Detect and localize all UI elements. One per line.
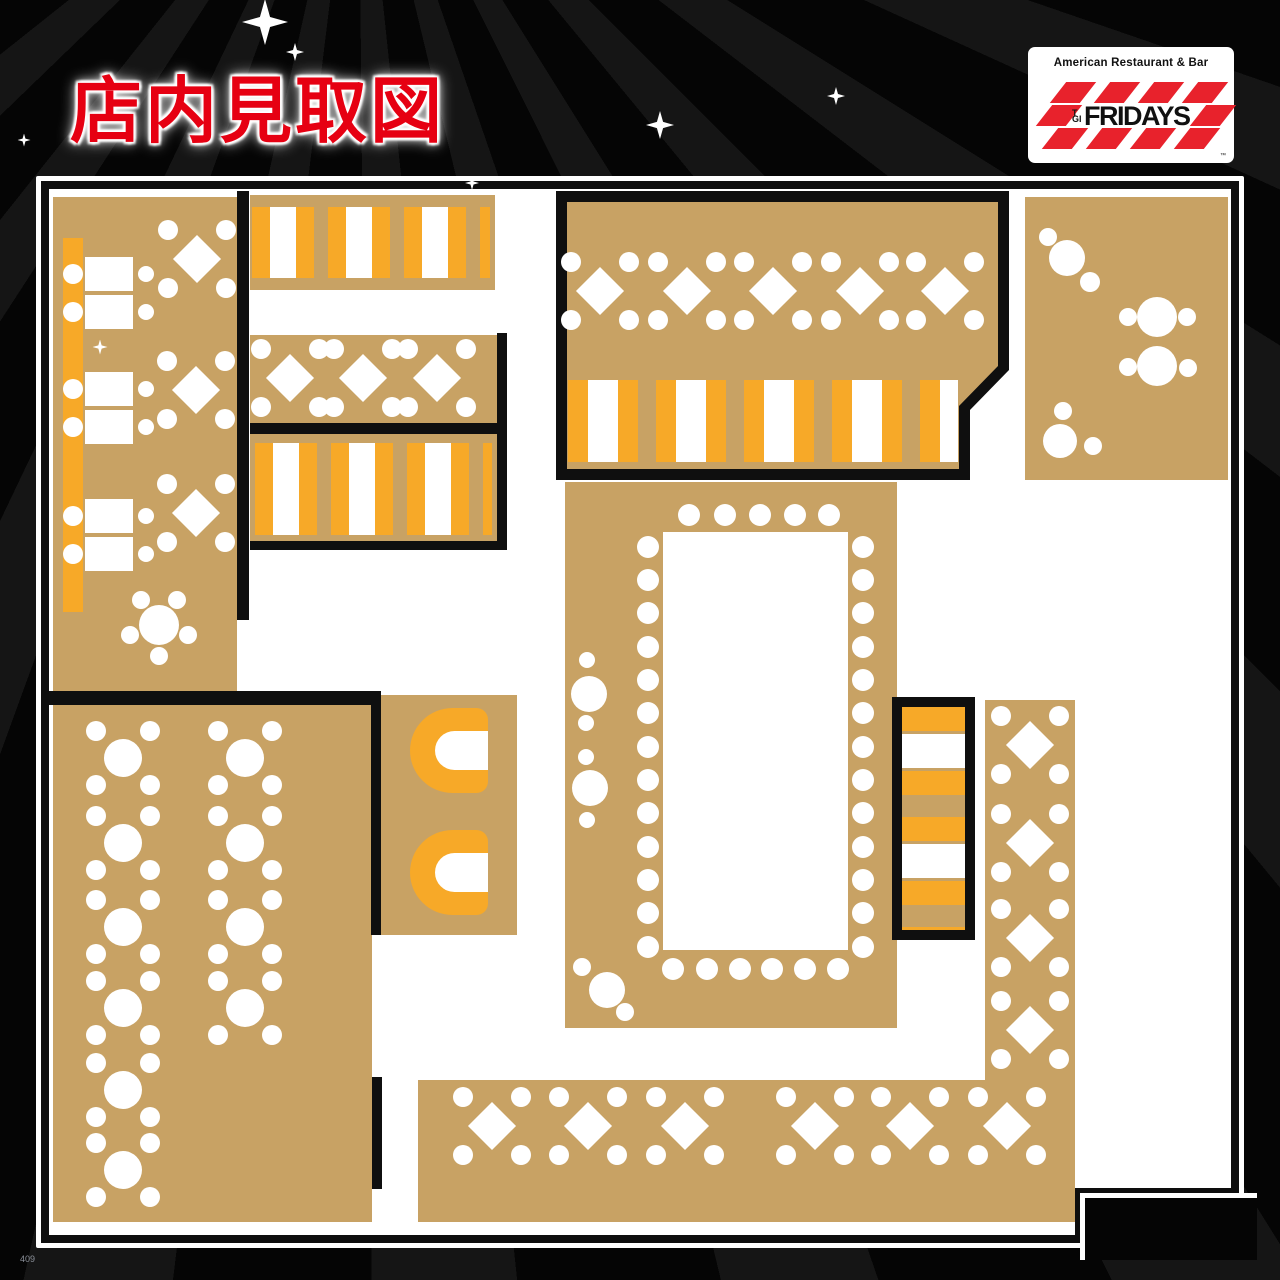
logo-wordmark: TGI FRIDAYS — [1072, 104, 1202, 128]
zone-top-right — [1025, 197, 1228, 480]
horseshoe-booth — [410, 708, 488, 793]
page-title: 店内見取図 — [70, 52, 445, 157]
sparkle-decoration — [827, 87, 845, 105]
zone-bottom-strip — [418, 1080, 1075, 1222]
plan-corner-notch — [1080, 1193, 1257, 1260]
wall — [250, 541, 507, 550]
wall — [497, 333, 507, 550]
zone-bottom-left — [53, 705, 372, 1222]
logo-tagline: American Restaurant & Bar — [1028, 57, 1234, 69]
wall — [250, 423, 498, 434]
booth-stripes-lower — [255, 443, 492, 535]
horseshoe-booth — [410, 830, 488, 915]
logo-stripe — [1042, 128, 1088, 149]
sparkle-decoration — [646, 111, 674, 139]
wall — [237, 191, 249, 620]
sparkle-decoration — [18, 134, 31, 147]
wall — [49, 691, 381, 705]
logo-trademark: ™ — [1220, 153, 1226, 159]
zone-diamond-row — [250, 335, 498, 423]
booth-stripes-right — [902, 707, 965, 930]
wall — [372, 1077, 382, 1189]
booth-stripes-center — [568, 380, 958, 462]
party-table-top — [663, 532, 848, 950]
logo-fridays-text: FRIDAYS — [1084, 101, 1190, 132]
page-background: 店内見取図 American Restaurant & Bar TGI FRID… — [0, 0, 1280, 1280]
footer-note: 409 — [20, 1254, 35, 1264]
wall — [371, 691, 381, 935]
logo-tgi-text: TGI — [1072, 110, 1082, 123]
bench-upper-left — [63, 238, 83, 612]
tgi-fridays-logo: American Restaurant & Bar TGI FRIDAYS ™ — [1028, 47, 1234, 163]
sparkle-decoration — [242, 0, 288, 45]
booth-stripes-top — [252, 207, 490, 278]
